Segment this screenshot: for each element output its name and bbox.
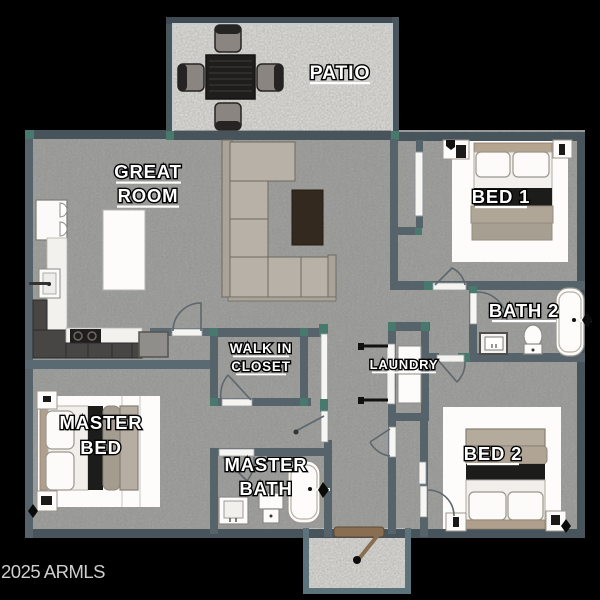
svg-text:BED 2: BED 2 (464, 443, 523, 464)
svg-text:BED 1: BED 1 (472, 186, 531, 207)
svg-text:MASTER: MASTER (225, 454, 308, 475)
svg-text:LAUNDRY: LAUNDRY (370, 357, 439, 372)
svg-text:ROOM: ROOM (118, 185, 179, 206)
svg-text:WALK IN: WALK IN (230, 341, 293, 356)
svg-text:2025 ARMLS: 2025 ARMLS (1, 561, 105, 582)
svg-text:GREAT: GREAT (114, 161, 181, 182)
svg-text:BED: BED (80, 437, 121, 458)
svg-text:PATIO: PATIO (310, 62, 371, 84)
svg-text:CLOSET: CLOSET (231, 359, 291, 374)
svg-text:MASTER: MASTER (60, 412, 143, 433)
svg-text:BATH: BATH (239, 478, 292, 499)
svg-text:BATH 2: BATH 2 (489, 300, 559, 321)
